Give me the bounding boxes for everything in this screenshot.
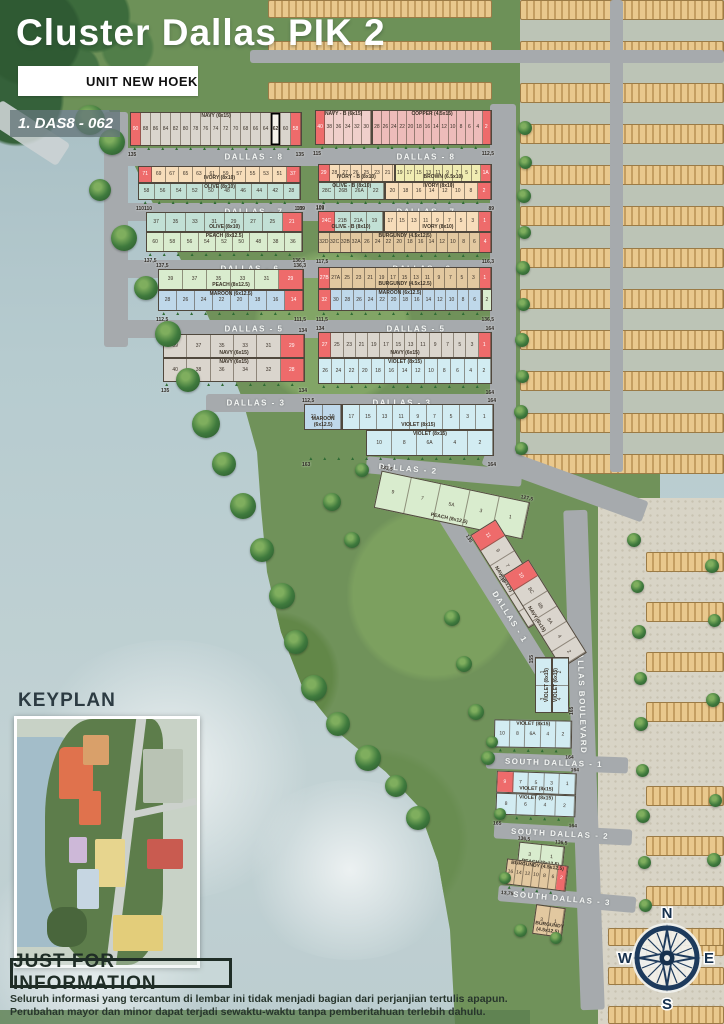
unit-cell: 14 <box>427 233 438 252</box>
unit-cell: 16 <box>412 290 424 310</box>
unit-cell: 2 <box>553 658 568 685</box>
unit-cell: 32C <box>330 233 341 252</box>
unit-cell: 21 <box>305 405 323 429</box>
unit-cell: 7 <box>442 333 454 357</box>
site-plan-poster: DALLAS - 8DALLAS - 8DALLAS - 7DALLAS - 7… <box>0 0 724 1024</box>
unit-cell: 21A <box>351 212 367 231</box>
unit-cell-hoek: 27 <box>319 333 331 357</box>
unit-cell: 22 <box>345 359 358 383</box>
block-row: 24C21B21A19OLIVE - B (8x10)1715131197531… <box>318 211 492 232</box>
unit-cell: 58 <box>139 184 155 199</box>
keyplan-shape <box>143 749 183 803</box>
unit-cell: 5 <box>528 773 544 794</box>
unit-cell: 35 <box>207 270 231 289</box>
unit-cell: 26 <box>354 290 366 310</box>
unit-cell: 76 <box>201 113 211 145</box>
block-row: 31BURGUNDY (4.5x12.5) <box>532 904 566 938</box>
unit-cell: 28 <box>284 184 300 199</box>
unit-cell: 7 <box>453 165 463 181</box>
unit-cell: 26A <box>352 183 368 199</box>
unit-cell: 26 <box>177 291 195 310</box>
unit-segment: 2624222018161412108642VIOLET (8x15) <box>318 358 492 384</box>
block-row: 27B27A252321191715131197531BURGUNDY (4.5… <box>318 267 492 289</box>
street-label: DALLAS - 5 <box>225 325 284 334</box>
unit-cell: 36 <box>211 359 234 381</box>
unit-cell: 15 <box>399 268 410 288</box>
unit-cell: 16 <box>385 359 398 383</box>
tree-icon <box>517 298 530 311</box>
unit-cell: 15 <box>415 165 425 181</box>
unit-block: 27B27A252321191715131197531BURGUNDY (4.5… <box>318 267 492 317</box>
unit-segment: 31BURGUNDY (4.5x12.5) <box>532 904 566 938</box>
corner-measurement: 136,5 <box>517 835 530 842</box>
keyplan-shape <box>95 839 125 887</box>
unit-cell: 16 <box>424 111 432 144</box>
unit-cell: 5 <box>443 405 460 429</box>
tree-icon <box>486 736 498 748</box>
unit-cell: 8 <box>510 721 526 747</box>
corner-measurement: 155 <box>529 655 535 663</box>
unit-cell-hoek: 29 <box>279 270 303 289</box>
unit-cell: 68 <box>241 113 251 145</box>
unit-cell: 5 <box>457 268 468 288</box>
unit-annotation: 1. DAS8 - 062 <box>10 110 120 137</box>
tree-icon <box>192 410 220 438</box>
tree-icon <box>705 559 719 573</box>
compass-rose-icon: N E S W <box>615 896 719 1020</box>
unit-segment: 28C26B26A22OLIVE - B (8x10) <box>318 182 385 200</box>
unit-cell: 18 <box>405 233 416 252</box>
unit-cell: 3 <box>466 333 478 357</box>
unit-cell: 2 <box>478 359 491 383</box>
unit-cell: 9 <box>434 268 445 288</box>
unit-cell: 21 <box>356 333 368 357</box>
unit-cell: 4 <box>553 685 568 712</box>
unit-cell: 27 <box>340 165 351 181</box>
corner-measurement: 136,3 <box>293 263 306 269</box>
unit-cell: 20 <box>386 183 399 199</box>
keyplan-shape <box>83 735 109 765</box>
unit-cell: 48 <box>250 233 267 251</box>
unit-cell: 5 <box>462 165 472 181</box>
unit-segment: 1086A42VIOLET (8x15) <box>366 430 494 456</box>
corner-measurement: 164 <box>571 767 580 773</box>
unit-cell: 80 <box>181 113 191 145</box>
unit-cell: 32A <box>351 233 362 252</box>
unit-cell: 7 <box>427 405 444 429</box>
street-trees-row: ▲▲▲▲▲▲▲▲▲▲▲ <box>146 252 303 258</box>
unit-cell: 24 <box>365 290 377 310</box>
unit-cell: 18 <box>372 359 385 383</box>
street-label: DALLAS BOULEVARD <box>576 646 589 755</box>
block-row: 8642VIOLET (8x15) <box>495 793 576 818</box>
unit-cell: 9 <box>410 405 427 429</box>
unit-cell-hoek: 1 <box>480 268 491 288</box>
corner-measurement: 136,5 <box>555 839 568 846</box>
street-trees-row: ▲▲▲▲▲▲▲▲▲▲▲▲ <box>318 311 492 317</box>
unit-segment: 24C21B21A19OLIVE - B (8x10) <box>318 211 384 232</box>
tree-icon <box>134 276 158 300</box>
unit-cell: 12 <box>412 359 425 383</box>
tree-icon <box>516 370 529 383</box>
unit-cell: 24 <box>195 291 213 310</box>
unit-cell: 3 <box>468 268 479 288</box>
unit-cell: 2 <box>555 796 575 817</box>
unit-cell-hoek: 32 <box>319 290 331 310</box>
unit-cell-hoek: 1 <box>479 333 491 357</box>
unit-cell: 28 <box>342 290 354 310</box>
unit-cell: 13 <box>411 268 422 288</box>
unit-cell-hoek: 27B <box>319 268 330 288</box>
unit-cell: 37 <box>187 335 210 357</box>
block-row: 42VIOLET (6x15) <box>552 657 569 713</box>
unit-cell-hoek: 14 <box>285 291 303 310</box>
tree-icon <box>155 321 181 347</box>
tree-icon <box>631 580 644 593</box>
unit-cell: 50 <box>233 233 250 251</box>
unit-cell: 26B <box>335 183 351 199</box>
unit-cell: 28 <box>159 291 177 310</box>
unit-cell: 28C <box>319 183 335 199</box>
unit-cell: 38 <box>325 111 334 144</box>
unit-cell: 6 <box>470 233 481 252</box>
block-row: 403836343230NAVY - B (6x15)2826242220181… <box>315 110 492 145</box>
tree-icon <box>519 156 532 169</box>
tree-icon <box>550 932 562 944</box>
unit-cell: 1 <box>536 658 551 685</box>
tree-icon <box>323 493 341 511</box>
block-row: 58565452504846444228OLIVE (8x10) <box>138 183 301 200</box>
tree-icon <box>385 775 407 797</box>
unit-cell: 26 <box>351 165 362 181</box>
unit-cell: 25 <box>342 268 353 288</box>
corner-measurement: 112,5 <box>482 151 494 157</box>
unit-cell: 9 <box>430 333 442 357</box>
tree-icon <box>444 610 460 626</box>
compass-e: E <box>704 950 714 967</box>
keyplan-cluster-highlight <box>79 791 101 825</box>
unit-block: 3735333129272521OLIVE (8x10)605856545250… <box>146 212 303 258</box>
block-row: 9088868482807876747270686664626058NAVY (… <box>130 112 302 146</box>
unit-cell: 13 <box>424 165 434 181</box>
unit-cell: 35 <box>166 213 185 231</box>
tree-icon <box>515 333 529 347</box>
unit-cell: 1 <box>476 405 493 429</box>
compass-s: S <box>662 996 672 1013</box>
unit-cell: 34 <box>234 359 257 381</box>
unit-cell: 60 <box>281 113 291 145</box>
corner-measurement: 110 <box>136 206 144 212</box>
unit-cell-hoek: 28 <box>281 359 304 381</box>
unit-cell: 23 <box>344 333 356 357</box>
unit-cell-hoek: 21 <box>283 213 302 231</box>
unit-segment: 2 <box>482 289 492 311</box>
street-trees-row: ▲▲▲▲▲▲▲▲▲▲▲▲ <box>130 146 302 152</box>
unit-cell-hoek: 1 <box>479 212 491 231</box>
tree-icon <box>326 712 350 736</box>
unit-cell: 14 <box>432 111 440 144</box>
unit-block: 1086A42VIOLET (8x15)▲▲▲▲▲164 <box>494 719 573 754</box>
tree-icon <box>514 924 527 937</box>
unit-cell: 2 <box>468 431 493 455</box>
unit-segment: 42VIOLET (6x15) <box>552 657 569 713</box>
unit-cell: 11 <box>393 405 410 429</box>
unit-cell: 22 <box>368 183 384 199</box>
unit-cell: 56 <box>155 184 171 199</box>
tree-icon <box>518 226 531 239</box>
unit-cell: 34 <box>344 111 353 144</box>
block-row: 2119MAROON (6x12.5)1715131197531VIOLET (… <box>304 404 494 430</box>
corner-measurement: 164 <box>488 462 496 468</box>
unit-segment: 20181614121082IVORY (8x10) <box>385 182 492 200</box>
block-row: 2624222018161412108642VIOLET (8x15) <box>318 358 492 384</box>
unit-segment: 393735333129PEACH (8x12.5) <box>158 269 304 290</box>
unit-cell: 6 <box>451 359 464 383</box>
unit-cell: 12 <box>437 233 448 252</box>
tree-icon <box>634 717 648 731</box>
corner-measurement: 137,5 <box>144 258 157 264</box>
unit-cell: 37 <box>147 213 166 231</box>
unit-cell: 10 <box>367 431 392 455</box>
tree-icon <box>494 808 506 820</box>
unit-segment: 27252321191715131197531NAVY (6x15) <box>318 332 492 358</box>
unit-cell: 32 <box>257 359 280 381</box>
tree-icon <box>468 704 484 720</box>
street-trees-row: ▲▲▲▲▲▲▲▲▲▲▲▲ <box>318 384 492 390</box>
unit-cell: 57 <box>233 167 246 182</box>
unit-cell: 30 <box>362 111 371 144</box>
unit-cell: 11 <box>434 165 444 181</box>
unit-cell: 3 <box>544 773 560 794</box>
unit-cell: 17 <box>405 165 415 181</box>
tree-icon <box>176 368 200 392</box>
unit-cell: 21 <box>365 268 376 288</box>
block-row: 393735333129NAVY (6x15) <box>163 334 305 358</box>
unit-cell: 22 <box>377 290 389 310</box>
unit-cell: 16 <box>413 183 426 199</box>
block-gap <box>304 430 366 456</box>
unit-cell: 19 <box>376 268 387 288</box>
corner-measurement: 136,5 <box>481 317 494 323</box>
unit-cell: 33 <box>234 335 257 357</box>
unit-cell: 8 <box>438 359 451 383</box>
unit-cell: 11 <box>417 333 429 357</box>
unit-cell: 86 <box>151 113 161 145</box>
unit-cell: 54 <box>171 184 187 199</box>
road <box>610 0 623 472</box>
unit-cell-highlighted: 62 <box>271 113 281 145</box>
unit-cell: 25 <box>362 165 373 181</box>
unit-cell: 7 <box>513 772 529 793</box>
unit-cell: 69 <box>152 167 165 182</box>
unit-cell: 31 <box>257 335 280 357</box>
tree-icon <box>301 675 327 701</box>
tree-icon <box>516 261 530 275</box>
unit-cell: 17 <box>385 212 397 231</box>
block-row: 2826242220181614MAROON (6x12.5) <box>158 290 304 311</box>
unit-segment: 2119MAROON (6x12.5) <box>304 404 342 430</box>
tree-icon <box>406 806 430 830</box>
unit-cell: 67 <box>166 167 179 182</box>
unit-cell: 58 <box>164 233 181 251</box>
unit-cell: 4 <box>535 795 555 816</box>
unit-cell: 19 <box>396 165 406 181</box>
unit-segment: 1715131197531IVORY (8x10) <box>384 211 492 232</box>
unit-cell: 13 <box>408 212 420 231</box>
tree-icon <box>230 493 256 519</box>
unit-cell: 27A <box>330 268 341 288</box>
tree-icon <box>515 442 528 455</box>
unit-cell: 35 <box>211 335 234 357</box>
unit-segment: 605856545250483836PEACH (8x12.5) <box>146 232 303 252</box>
unit-cell: 61 <box>206 167 219 182</box>
unit-cell: 24 <box>373 233 384 252</box>
tree-icon <box>355 463 369 477</box>
unit-cell: 36 <box>334 111 343 144</box>
legend-label: UNIT NEW HOEK <box>86 74 198 89</box>
unit-cell: 23 <box>353 268 364 288</box>
unit-cell: 17 <box>380 333 392 357</box>
unit-segment: 2826242220181614MAROON (6x12.5) <box>158 290 304 311</box>
unit-cell-hoek: 2 <box>483 111 491 144</box>
tree-icon <box>499 872 511 884</box>
tree-icon <box>518 121 532 135</box>
street-trees-row: ▲▲▲▲▲▲▲▲▲▲▲▲ <box>318 200 492 206</box>
block-row: 29282726252321IVORY - B (8x10)1917151311… <box>318 164 492 182</box>
unit-block: 716967656361595755535137IVORY (8x10)5856… <box>138 166 301 206</box>
keyplan-map <box>14 716 200 968</box>
tree-icon <box>111 225 137 251</box>
unit-cell: 33 <box>231 270 255 289</box>
unit-cell: 6A <box>417 431 442 455</box>
unit-cell: 6 <box>469 290 481 310</box>
unit-cell: 65 <box>179 167 192 182</box>
unit-cell: 48 <box>219 184 235 199</box>
unit-cell: 1 <box>560 774 576 795</box>
tree-icon <box>708 614 721 627</box>
unit-cell: 78 <box>191 113 201 145</box>
unit-cell: 20 <box>394 233 405 252</box>
info-heading-box: JUST FOR INFORMATION <box>10 958 232 988</box>
tree-icon <box>269 583 295 609</box>
corner-measurement: 137,5 <box>156 263 169 269</box>
unit-cell: 23 <box>372 165 383 181</box>
corner-measurement: 135 <box>161 388 169 394</box>
unit-cell: 27 <box>244 213 263 231</box>
unit-cell-hoek: 58 <box>291 113 301 145</box>
tree-icon <box>632 625 646 639</box>
unit-cell: 19 <box>323 405 341 429</box>
corner-measurement: 164 <box>488 398 496 404</box>
compass-w: W <box>618 950 633 967</box>
legend-swatch <box>30 71 76 91</box>
unit-segment: 1715131197531VIOLET (8x15) <box>342 404 494 430</box>
corner-measurement: 134 <box>299 388 307 394</box>
corner-measurement: 117,5 <box>316 259 328 265</box>
unit-cell: 16 <box>267 291 285 310</box>
unit-cell-hoek: 1A <box>481 165 491 181</box>
legend: UNIT NEW HOEK <box>18 66 198 96</box>
block-row: 32D32C32B32A262422201816141210864BURGUND… <box>318 232 492 253</box>
unit-segment: 27B27A252321191715131197531BURGUNDY (4.5… <box>318 267 492 289</box>
unit-cell-hoek: 90 <box>131 113 141 145</box>
unit-cell: 46 <box>236 184 252 199</box>
street-trees-row: ▲▲▲▲▲▲▲▲▲▲ <box>158 311 304 317</box>
block-row: 32302826242220181614121086MAROON (6x12.5… <box>318 289 492 311</box>
unit-segment: 191715131197531ABROWN (6.5x10) <box>395 164 493 182</box>
street-label: DALLAS - 8 <box>225 153 284 162</box>
unit-cell: 26 <box>362 233 373 252</box>
unit-cell: 30 <box>331 290 343 310</box>
tree-icon <box>456 656 472 672</box>
corner-measurement: 115 <box>313 151 321 157</box>
info-line-2: Perubahan mayor dan minor dapat terjadi … <box>10 1006 570 1019</box>
unit-segment: 8642VIOLET (8x15) <box>495 793 576 818</box>
unit-cell: 31 <box>205 213 224 231</box>
unit-segment: 97531VIOLET (8x15) <box>496 771 577 796</box>
unit-cell: 52 <box>216 233 233 251</box>
tree-icon <box>355 745 381 771</box>
keyplan-shape <box>47 907 87 947</box>
unit-cell-hoek: 2 <box>478 183 491 199</box>
unit-cell: 10 <box>448 233 459 252</box>
unit-block: 29282726252321IVORY - B (8x10)1917151311… <box>318 164 492 206</box>
unit-cell-hoek: 29 <box>319 165 330 181</box>
unit-cell: 8 <box>465 183 478 199</box>
unit-segment: 282624222018161412108642COPPER (4.5x15) <box>372 110 492 145</box>
unit-cell: 72 <box>221 113 231 145</box>
unit-cell: 56 <box>181 233 198 251</box>
street-trees-row: ▲▲▲▲▲▲▲▲▲▲▲▲▲ <box>304 456 494 462</box>
unit-cell: 24 <box>332 359 345 383</box>
unit-block: 2119MAROON (6x12.5)1715131197531VIOLET (… <box>304 404 494 462</box>
tree-icon <box>250 538 274 562</box>
unit-cell: 12 <box>440 111 448 144</box>
unit-cell: 14 <box>423 290 435 310</box>
tree-icon <box>709 794 722 807</box>
unit-cell: 51 <box>273 167 286 182</box>
tree-icon <box>627 533 641 547</box>
unit-cell: 3 <box>536 685 551 712</box>
unit-cell-hoek: 9 <box>497 772 513 793</box>
unit-cell: 14 <box>426 183 439 199</box>
unit-cell: 7 <box>444 212 456 231</box>
unit-cell: 38 <box>268 233 285 251</box>
unit-cell: 17 <box>343 405 360 429</box>
unit-cell: 20 <box>231 291 249 310</box>
unit-cell: 32 <box>353 111 362 144</box>
unit-cell: 4 <box>540 721 556 747</box>
unit-cell: 74 <box>211 113 221 145</box>
unit-cell: 22 <box>398 111 406 144</box>
unit-cell: 36 <box>285 233 302 251</box>
tree-icon <box>706 693 720 707</box>
tree-icon <box>636 809 650 823</box>
corner-measurement: 164 <box>486 326 494 332</box>
tree-icon <box>638 856 651 869</box>
unit-cell: 28 <box>330 165 341 181</box>
corner-measurement: 165 <box>569 707 575 715</box>
tree-icon <box>212 452 236 476</box>
unit-cell: 6A <box>525 721 541 747</box>
unit-cell-hoek: 24C <box>319 212 335 231</box>
unit-cell: 4 <box>474 111 482 144</box>
corner-measurement: 163 <box>302 462 310 468</box>
block-row: 716967656361595755535137IVORY (8x10) <box>138 166 301 183</box>
unit-cell: 53 <box>260 167 273 182</box>
unit-cell: 32B <box>341 233 352 252</box>
tree-icon <box>284 630 308 654</box>
